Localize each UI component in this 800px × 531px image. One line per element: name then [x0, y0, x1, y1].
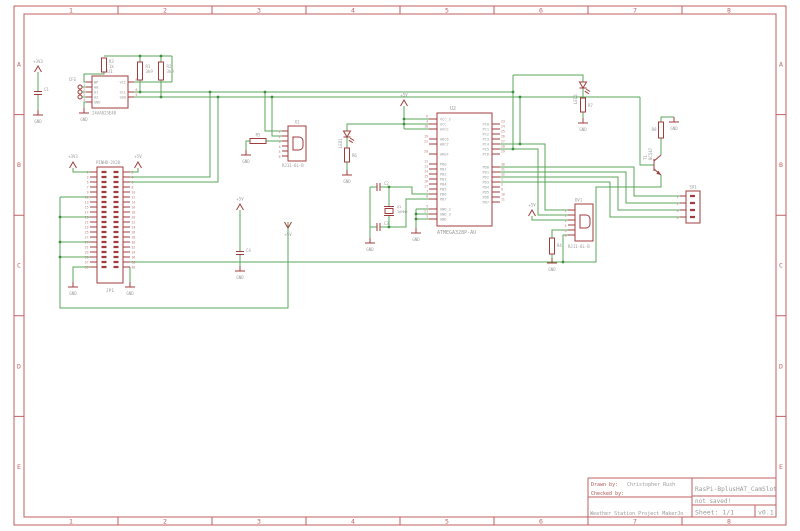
version: v0.1: [758, 509, 774, 517]
save-status: not saved!: [695, 498, 731, 505]
component-c3[interactable]: C3: [377, 221, 389, 231]
svg-text:GND: GND: [236, 275, 244, 280]
svg-text:23242526272829: 23242526272829: [501, 120, 505, 154]
power-symbols: +3V3 +3V3 +5V +5V +5V +5V +5V: [33, 59, 536, 237]
u1-ref: U1: [107, 69, 113, 75]
svg-text:GND: GND: [343, 179, 351, 184]
schematic-canvas[interactable]: 12345678 12345678 ABCDE ABCDE Drawn by: …: [0, 0, 800, 531]
component-r5[interactable]: R5: [250, 133, 266, 144]
c4-ref: C4: [246, 248, 251, 253]
project-name: Weather Station Project MakerJo: [590, 511, 683, 517]
c1-ref: C1: [44, 87, 49, 92]
svg-text:WPA0A1A2GND: WPA0A1A2GND: [94, 81, 101, 105]
frame-rows-left: ABCDE: [17, 61, 21, 471]
svg-text:GND: GND: [34, 119, 42, 124]
svg-text:123456: 123456: [279, 130, 281, 159]
svg-text:135791113151719212325272931333: 13579111315171921232527293133353739: [85, 171, 89, 270]
component-u1-eeprom[interactable]: U1 24AA025E48 WPA0A1A2GND VCCSCLSDA 7123…: [83, 69, 137, 116]
component-led1[interactable]: LED1: [338, 131, 354, 148]
svg-text:865: 865: [136, 78, 138, 97]
dv1-value: RJ11-6L-B: [568, 244, 590, 249]
svg-text:VCC_2VCCAVCCADC6ADC7AREFPB0PB1: VCC_2VCCAVCCADC6ADC7AREFPB0PB1PB2PB3PB4P…: [440, 118, 451, 222]
component-r1[interactable]: R1 3k9: [138, 62, 154, 80]
q1-value: 16MHz: [397, 210, 408, 214]
p5v-arrow: [135, 162, 142, 168]
component-dv1-rj11[interactable]: 123456 DV1 RJ11-6L-B: [565, 198, 593, 250]
c2-ref: C2: [384, 181, 389, 186]
frame-rows-right: ABCDE: [779, 61, 783, 471]
svg-text:GND: GND: [579, 127, 587, 132]
component-r6[interactable]: R6: [345, 148, 358, 162]
component-r7[interactable]: R7: [581, 98, 594, 112]
t1-value: BC547: [648, 147, 653, 160]
jp1-value: PINHD-2X20: [96, 160, 121, 165]
component-r8[interactable]: R8: [652, 122, 664, 138]
sheet-number: Sheet: 1/1: [695, 509, 734, 517]
component-sv1-header[interactable]: 1234 SV1: [677, 185, 700, 224]
p3v3-label: +3V3: [68, 154, 78, 159]
component-x1-rj11[interactable]: 123456 X1 RJ11-6L-B: [279, 120, 306, 169]
x1-value: RJ11-6L-B: [282, 163, 304, 168]
component-c4[interactable]: C4: [236, 248, 251, 255]
component-cfg-pads[interactable]: CFG: [69, 77, 82, 99]
component-c2[interactable]: C2: [377, 181, 389, 191]
u1-value: 24AA025E48: [92, 111, 117, 116]
p5v-label: +5V: [134, 154, 142, 159]
r5-ref: R5: [256, 133, 261, 138]
document-title: RasPi-BplusHAT_CamSlot: [695, 486, 777, 493]
p3v3-arrow: [70, 162, 77, 168]
net-wires: [38, 56, 680, 308]
component-u2-atmega328p[interactable]: VCC_2VCCAVCCADC6ADC7AREFPB0PB1PB2PB3PB4P…: [424, 106, 505, 236]
p5v-label: +5V: [528, 203, 536, 208]
svg-text:GND: GND: [548, 267, 556, 272]
u2-value: ATMEGA328P-AU: [437, 230, 476, 236]
r8-ref: R8: [652, 127, 657, 132]
jp1-ref: JP1: [106, 288, 114, 294]
q1-ref: Q1: [397, 205, 401, 209]
component-led2[interactable]: LED2: [573, 82, 590, 104]
component-jp1-header[interactable]: 13579111315171921232527293133353739 2468…: [85, 160, 136, 294]
checked-by-label: Checked by:: [591, 491, 624, 497]
svg-text:PD0PD1PD2PD3PD4PD5PD6PD7: PD0PD1PD2PD3PD4PD5PD6PD7: [483, 166, 490, 205]
led1-ref: LED1: [338, 138, 343, 148]
drawing-frame: 12345678 12345678 ABCDE ABCDE: [14, 6, 786, 526]
drawn-by-label: Drawn by:: [591, 482, 618, 488]
component-q1-crystal[interactable]: Q1 16MHz: [384, 205, 408, 216]
r4-ref: R4: [557, 243, 562, 248]
component-t1-transistor[interactable]: T1 BC547: [643, 147, 661, 175]
svg-text:1234: 1234: [677, 195, 679, 220]
svg-text:PC0PC1PC2PC3PC4PC5PC6: PC0PC1PC2PC3PC4PC5PC6: [483, 123, 490, 157]
component-c1[interactable]: C1: [34, 87, 49, 95]
p3v3-arrow: [35, 66, 42, 72]
dv1-ref: DV1: [575, 198, 583, 203]
p5v-arrow: [529, 210, 536, 216]
r1-value: 3k9: [146, 69, 154, 74]
svg-text:GND: GND: [670, 126, 678, 131]
svg-text:VCCSCLSDA: VCCSCLSDA: [120, 81, 127, 100]
cfg-ref: CFG: [69, 77, 77, 82]
r3-value: 1k: [109, 64, 114, 69]
svg-text:GND: GND: [80, 117, 88, 122]
svg-text:GND: GND: [366, 247, 374, 252]
p5v-label: +5V: [236, 197, 244, 202]
r7-ref: R7: [588, 103, 593, 108]
r6-ref: R6: [352, 153, 357, 158]
p5v-label: +5V: [400, 93, 408, 98]
p5v-arrow: [237, 204, 244, 210]
svg-text:6418192220121314151617785213: 6418192220121314151617785213: [424, 115, 428, 219]
svg-text:71234: 71234: [83, 78, 85, 102]
drawn-by-value: Christopher Rush: [627, 482, 675, 488]
svg-text:123456: 123456: [565, 209, 567, 238]
sv1-ref: SV1: [689, 185, 697, 190]
title-block: Drawn by: Christopher Rush Checked by: W…: [588, 478, 777, 517]
r2-value: 3k9: [167, 69, 175, 74]
svg-text:GND: GND: [412, 237, 420, 242]
p3v3-label: +3V3: [33, 59, 43, 64]
p5v-arrow: [401, 100, 408, 106]
u2-ref: U2: [450, 106, 456, 112]
svg-text:GND: GND: [126, 291, 134, 296]
component-r4[interactable]: R4: [550, 238, 563, 254]
c3-ref: C3: [384, 221, 389, 226]
svg-text:GND: GND: [242, 159, 250, 164]
svg-text:246810121416182022242628303234: 246810121416182022242628303234363840: [132, 171, 136, 270]
led2-ref: LED2: [573, 94, 578, 104]
x1-ref: X1: [295, 120, 300, 125]
p5v-label: +5V: [284, 232, 292, 237]
svg-text:GND: GND: [69, 291, 77, 296]
